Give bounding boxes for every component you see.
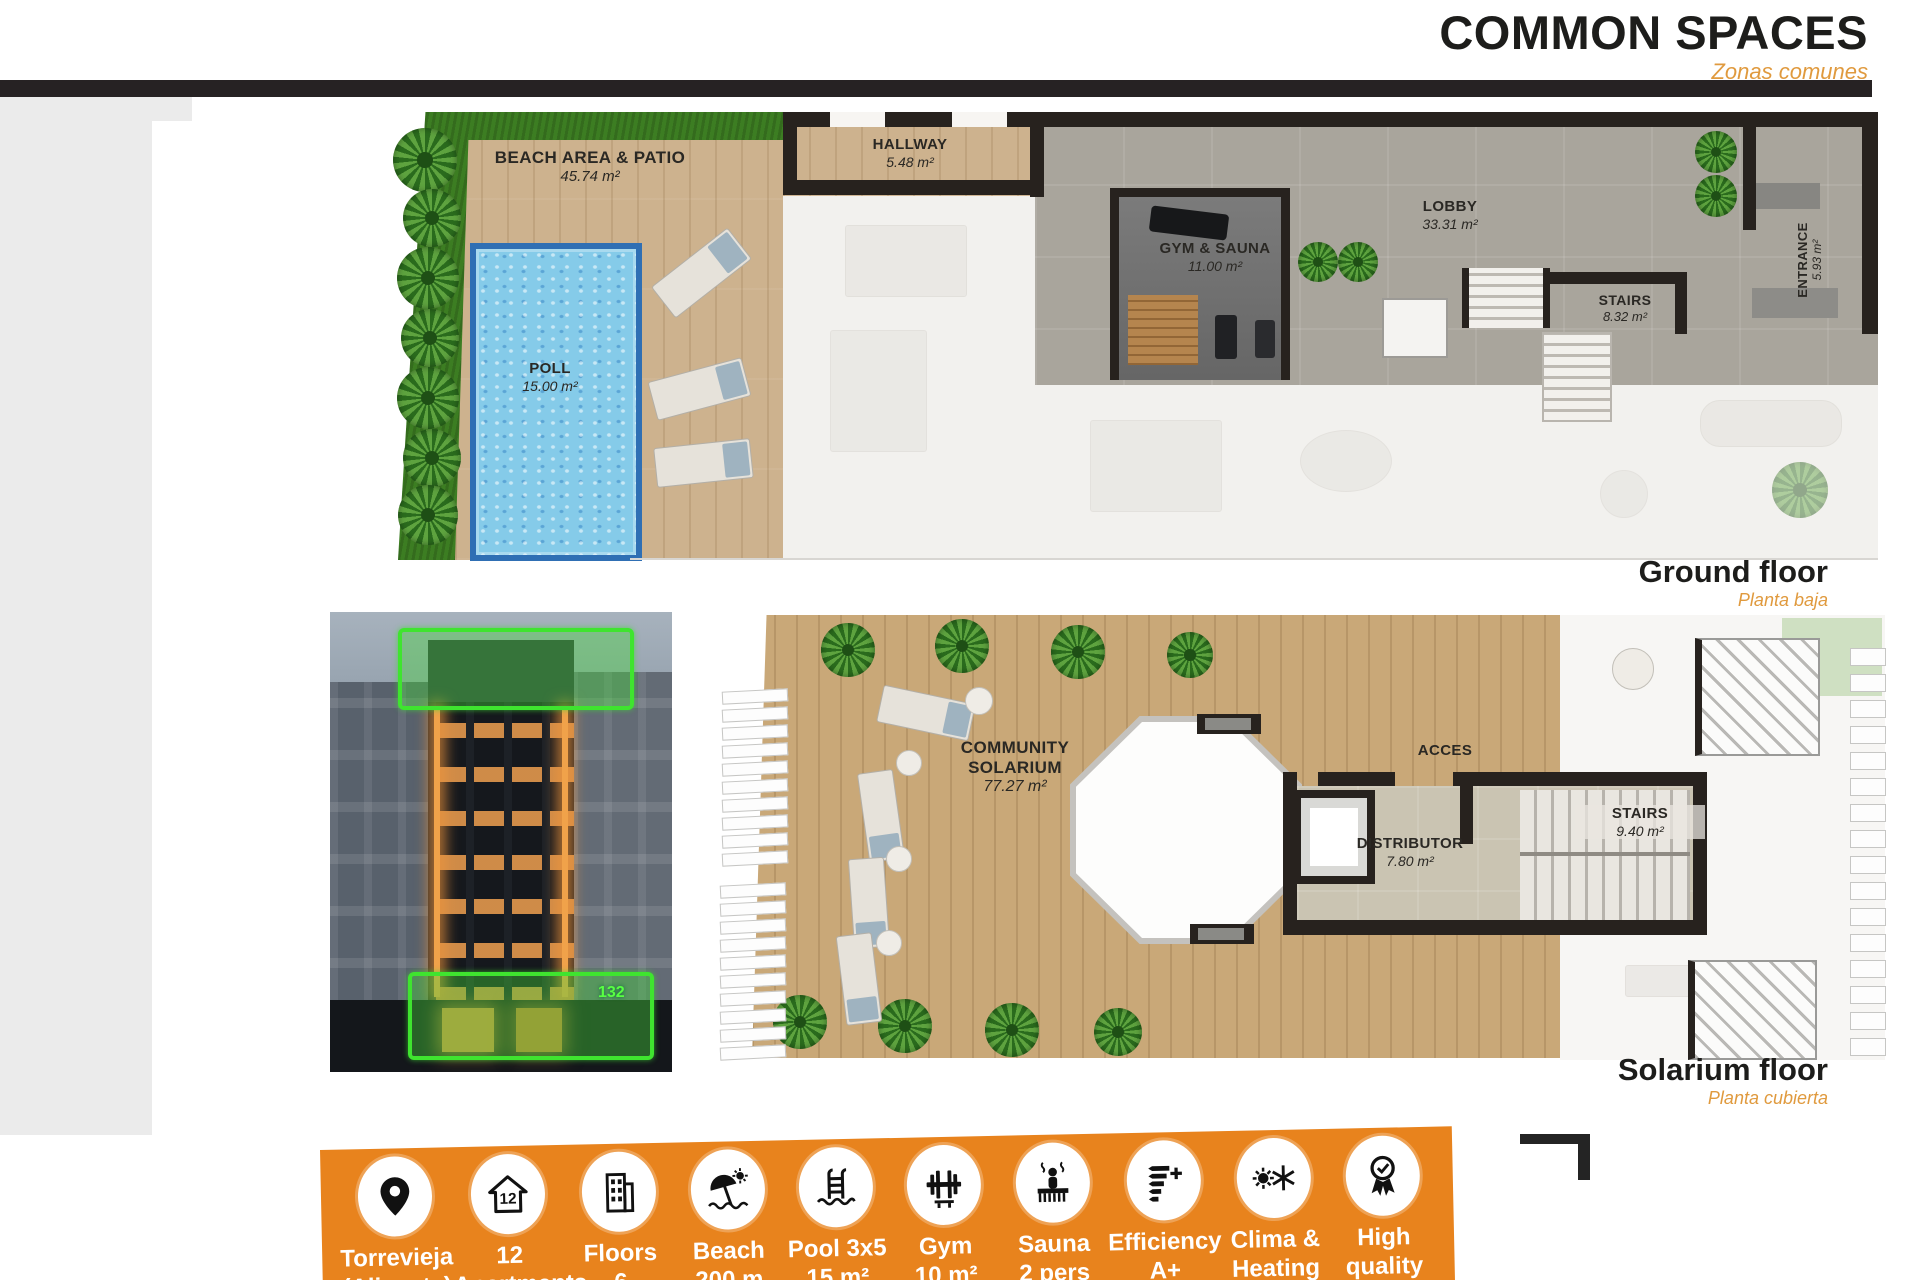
feature-label: 12 [453, 1242, 567, 1270]
facade-light-strip [434, 707, 440, 997]
furniture-ghost [1700, 400, 1842, 447]
feature-label: Sauna [1000, 1231, 1109, 1258]
palm-icon [398, 485, 458, 545]
wall [1453, 772, 1707, 786]
room-label-solarium: COMMUNITY SOLARIUM 77.27 m² [940, 738, 1090, 797]
slat [1850, 700, 1886, 718]
room-area: 9.40 m² [1575, 823, 1705, 840]
side-table [965, 687, 993, 715]
slat [1850, 960, 1886, 978]
room-label-lobby: LOBBY 33.31 m² [1385, 198, 1515, 232]
side-table [896, 750, 922, 776]
palm-icon [878, 999, 932, 1053]
feature-label: Floors [566, 1240, 675, 1267]
slat [1850, 726, 1886, 744]
feature-label: 15 m² [783, 1264, 892, 1280]
svg-text:12: 12 [500, 1190, 517, 1207]
highlight-solarium-floor [398, 628, 634, 710]
slat [1850, 804, 1886, 822]
feature-label: Pool 3x5 [783, 1235, 892, 1262]
wall [1030, 112, 1044, 197]
feature-floors: Floors 6 [564, 1151, 676, 1280]
room-label-gym: GYM & SAUNA 11.00 m² [1150, 240, 1280, 274]
terrace-table [1612, 648, 1654, 690]
slat [1850, 752, 1886, 770]
elevator [1382, 298, 1448, 358]
feature-location: Torrevieja (Alicante) [338, 1155, 455, 1280]
room-label-acces: ACCES [1380, 742, 1510, 760]
slat [1850, 882, 1886, 900]
wall [1318, 772, 1395, 786]
room-area: 7.80 m² [1330, 853, 1490, 870]
feature-label: Beach [674, 1237, 783, 1264]
room-label-stairs-g: STAIRS 8.32 m² [1560, 292, 1690, 324]
wall [1545, 272, 1687, 284]
feature-label: quality [1330, 1253, 1439, 1280]
feature-label: Heating [1222, 1255, 1331, 1280]
slat [1850, 674, 1886, 692]
door-opening [952, 112, 1007, 127]
feature-label: Torrevieja [340, 1244, 453, 1272]
palm-icon [1772, 462, 1828, 518]
header-rule [0, 80, 1872, 97]
wall [783, 180, 1035, 195]
beach-icon [690, 1149, 766, 1231]
room-area: 45.74 m² [480, 168, 700, 186]
left-margin-step [152, 97, 192, 121]
location-pin-icon [358, 1156, 434, 1238]
slat [1850, 908, 1886, 926]
wall [1862, 112, 1878, 334]
slat [1850, 1012, 1886, 1030]
palm-icon [1338, 242, 1378, 282]
page-header: COMMON SPACES Zonas comunes [1439, 8, 1868, 85]
room-name: POLL [485, 360, 615, 378]
feature-label: 2 pers [1000, 1260, 1109, 1280]
side-table [876, 930, 902, 956]
feature-efficiency: Efficiency A+ [1106, 1139, 1223, 1280]
skylight-planter [1198, 928, 1244, 940]
features-bar: Torrevieja (Alicante) 12 12 Apartments F… [320, 1126, 1456, 1280]
furniture-ghost [1300, 430, 1392, 492]
palm-icon [935, 619, 989, 673]
room-name: ENTRANCE [1795, 175, 1810, 345]
private-stairs-bottom [1688, 960, 1817, 1060]
room-name: GYM & SAUNA [1150, 240, 1280, 258]
feature-beach: Beach 200 m [672, 1148, 784, 1280]
furniture-ghost [1090, 420, 1222, 512]
side-table [886, 846, 912, 872]
palm-icon [1167, 632, 1213, 678]
room-name: LOBBY [1385, 198, 1515, 216]
wall [1693, 772, 1707, 935]
efficiency-icon [1126, 1140, 1202, 1222]
room-area: 5.93 m² [1810, 175, 1824, 345]
left-margin-panel [0, 97, 152, 1135]
palm-icon [393, 128, 457, 192]
stair-landing [1520, 852, 1690, 856]
private-stairs-top [1695, 638, 1820, 756]
solarium-caption: Solarium floor [1428, 1052, 1828, 1088]
skylight-planter [1205, 718, 1251, 730]
palm-icon [403, 429, 461, 487]
feature-label: 10 m² [892, 1262, 1001, 1280]
room-area: 33.31 m² [1385, 216, 1515, 233]
palm-icon [1695, 175, 1737, 217]
gym-equipment [1215, 315, 1237, 359]
slat [1850, 986, 1886, 1004]
ground-floor-caption-es: Planta baja [1428, 590, 1828, 611]
skylight [1076, 722, 1296, 938]
palm-icon [403, 189, 461, 247]
palm-icon [821, 623, 875, 677]
door-opening [830, 112, 885, 127]
palm-icon [397, 247, 459, 309]
room-name: COMMUNITY SOLARIUM [940, 738, 1090, 778]
house-count-icon: 12 [471, 1153, 547, 1235]
slat [1850, 830, 1886, 848]
lobby-stairs [1462, 268, 1550, 328]
furniture-ghost [845, 225, 967, 297]
room-area: 77.27 m² [940, 778, 1090, 797]
stairwell-treads [1542, 332, 1612, 422]
pool-ladder-icon [798, 1146, 874, 1228]
room-area: 8.32 m² [1560, 309, 1690, 324]
room-label-pool: POLL 15.00 m² [485, 360, 615, 394]
room-label-entrance: ENTRANCE 5.93 m² [1795, 175, 1824, 345]
feature-label: 200 m [675, 1267, 784, 1280]
climate-icon [1236, 1137, 1312, 1219]
ground-floor-caption: Ground floor [1428, 554, 1828, 590]
room-area: 15.00 m² [485, 378, 615, 395]
wall [1283, 920, 1707, 935]
palm-icon [985, 1003, 1039, 1057]
facade-light-strip [562, 707, 568, 997]
feature-gym: Gym 10 m² [889, 1144, 1001, 1280]
crop-artifact [1520, 1134, 1590, 1180]
room-label-stairs-s: STAIRS 9.40 m² [1575, 805, 1705, 839]
feature-label: High [1329, 1224, 1438, 1251]
page-title: COMMON SPACES [1439, 8, 1868, 57]
quality-icon [1345, 1135, 1421, 1217]
floor-badge: 132 [598, 984, 625, 1002]
feature-climate: Clima & Heating [1219, 1137, 1331, 1280]
slat [1850, 934, 1886, 952]
solarium-caption-es: Planta cubierta [1428, 1088, 1828, 1109]
palm-icon [1051, 625, 1105, 679]
gym-icon [907, 1144, 983, 1226]
brochure-page: COMMON SPACES Zonas comunes POLL 15.00 m… [0, 0, 1920, 1280]
feature-pool: Pool 3x5 15 m² [781, 1146, 893, 1280]
feature-label: Gym [891, 1233, 1000, 1260]
feature-sauna: Sauna 2 pers [998, 1142, 1110, 1280]
room-name: BEACH AREA & PATIO [480, 148, 700, 168]
feature-label: (Alicante) [341, 1273, 454, 1280]
sauna-icon [1015, 1142, 1091, 1224]
room-name: HALLWAY [845, 136, 975, 154]
wall [1283, 772, 1297, 930]
furniture-ghost [830, 330, 927, 452]
slat [1850, 1038, 1886, 1056]
wall [783, 112, 1878, 127]
building-floors-icon [581, 1151, 657, 1233]
main-building-facade [428, 702, 574, 1002]
room-name: DISTRIBUTOR [1330, 835, 1490, 853]
room-label-distributor: DISTRIBUTOR 7.80 m² [1330, 835, 1490, 869]
slat [1850, 648, 1886, 666]
palm-icon [1298, 242, 1338, 282]
slat [1850, 778, 1886, 796]
feature-quality: High quality [1328, 1135, 1440, 1280]
room-area: 5.48 m² [845, 154, 975, 171]
room-label-beach-patio: BEACH AREA & PATIO 45.74 m² [480, 148, 700, 186]
gym-equipment [1255, 320, 1275, 358]
sauna-bench [1128, 295, 1198, 365]
slat [1850, 856, 1886, 874]
wall [1743, 112, 1756, 230]
palm-icon [397, 367, 459, 429]
feature-label: Apartments [454, 1271, 568, 1280]
furniture-ghost [1600, 470, 1648, 518]
room-area: 11.00 m² [1150, 258, 1280, 275]
palm-icon [401, 309, 459, 367]
room-name: STAIRS [1575, 805, 1705, 823]
slat [720, 1044, 787, 1060]
palm-icon [1094, 1008, 1142, 1056]
pool [470, 243, 642, 561]
room-name: STAIRS [1560, 292, 1690, 309]
feature-label: Efficiency [1108, 1228, 1222, 1256]
palm-icon [1695, 131, 1737, 173]
feature-apartments: 12 12 Apartments [451, 1153, 568, 1280]
building-photo: 132 [330, 612, 672, 1072]
feature-label: 6 [567, 1269, 676, 1280]
room-name: ACCES [1380, 742, 1510, 760]
room-label-hallway: HALLWAY 5.48 m² [845, 136, 975, 170]
feature-label: A+ [1109, 1257, 1223, 1280]
feature-label: Clima & [1221, 1226, 1330, 1253]
